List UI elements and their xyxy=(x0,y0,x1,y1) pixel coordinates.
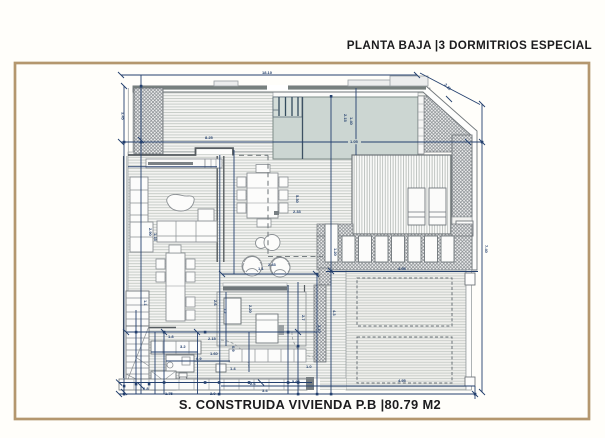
svg-text:1.4: 1.4 xyxy=(230,366,236,371)
svg-text:2.90: 2.90 xyxy=(148,228,153,237)
svg-text:1.8: 1.8 xyxy=(168,334,174,339)
svg-text:8.25: 8.25 xyxy=(205,135,214,140)
svg-text:PLANTA BAJA |3 DORMITRIOS ESPE: PLANTA BAJA |3 DORMITRIOS ESPECIAL xyxy=(347,39,592,52)
svg-text:2.15: 2.15 xyxy=(343,114,348,123)
svg-text:1.60: 1.60 xyxy=(210,351,219,356)
svg-text:S. CONSTRUIDA VIVIENDA P.B |80: S. CONSTRUIDA VIVIENDA P.B |80.79 M2 xyxy=(179,397,441,412)
svg-text:4.95: 4.95 xyxy=(398,378,407,383)
svg-text:5.30: 5.30 xyxy=(295,195,300,204)
svg-text:1.1: 1.1 xyxy=(258,266,264,271)
svg-text:2.0: 2.0 xyxy=(210,391,216,396)
svg-text:1.2: 1.2 xyxy=(223,308,228,314)
svg-text:2.7: 2.7 xyxy=(301,315,306,321)
svg-text:1.20: 1.20 xyxy=(333,248,338,257)
svg-text:1.75: 1.75 xyxy=(165,391,174,396)
svg-text:2.15: 2.15 xyxy=(208,336,217,341)
svg-text:2.20: 2.20 xyxy=(248,305,253,314)
svg-text:0.8: 0.8 xyxy=(143,386,149,391)
svg-text:3.4: 3.4 xyxy=(262,388,268,393)
svg-text:1.15: 1.15 xyxy=(153,233,158,242)
svg-text:1.40: 1.40 xyxy=(349,117,354,126)
svg-text:3.45: 3.45 xyxy=(121,112,126,121)
svg-text:2.33: 2.33 xyxy=(293,209,302,214)
svg-text:0.9: 0.9 xyxy=(196,356,202,361)
svg-text:1.05: 1.05 xyxy=(350,139,359,144)
svg-text:3.2: 3.2 xyxy=(180,344,186,349)
svg-text:7.40: 7.40 xyxy=(484,245,489,254)
svg-text:3.10: 3.10 xyxy=(317,325,322,334)
svg-text:18.10: 18.10 xyxy=(262,70,273,75)
svg-text:2.6: 2.6 xyxy=(250,381,256,386)
svg-text:2.6: 2.6 xyxy=(213,300,218,306)
svg-text:0.9: 0.9 xyxy=(231,346,236,352)
svg-text:5.60: 5.60 xyxy=(292,379,301,384)
svg-text:1.0: 1.0 xyxy=(306,364,312,369)
svg-text:4.3: 4.3 xyxy=(332,310,337,316)
svg-text:4.95: 4.95 xyxy=(398,266,407,271)
svg-text:2.33: 2.33 xyxy=(268,262,277,267)
svg-text:1.1: 1.1 xyxy=(143,300,148,306)
